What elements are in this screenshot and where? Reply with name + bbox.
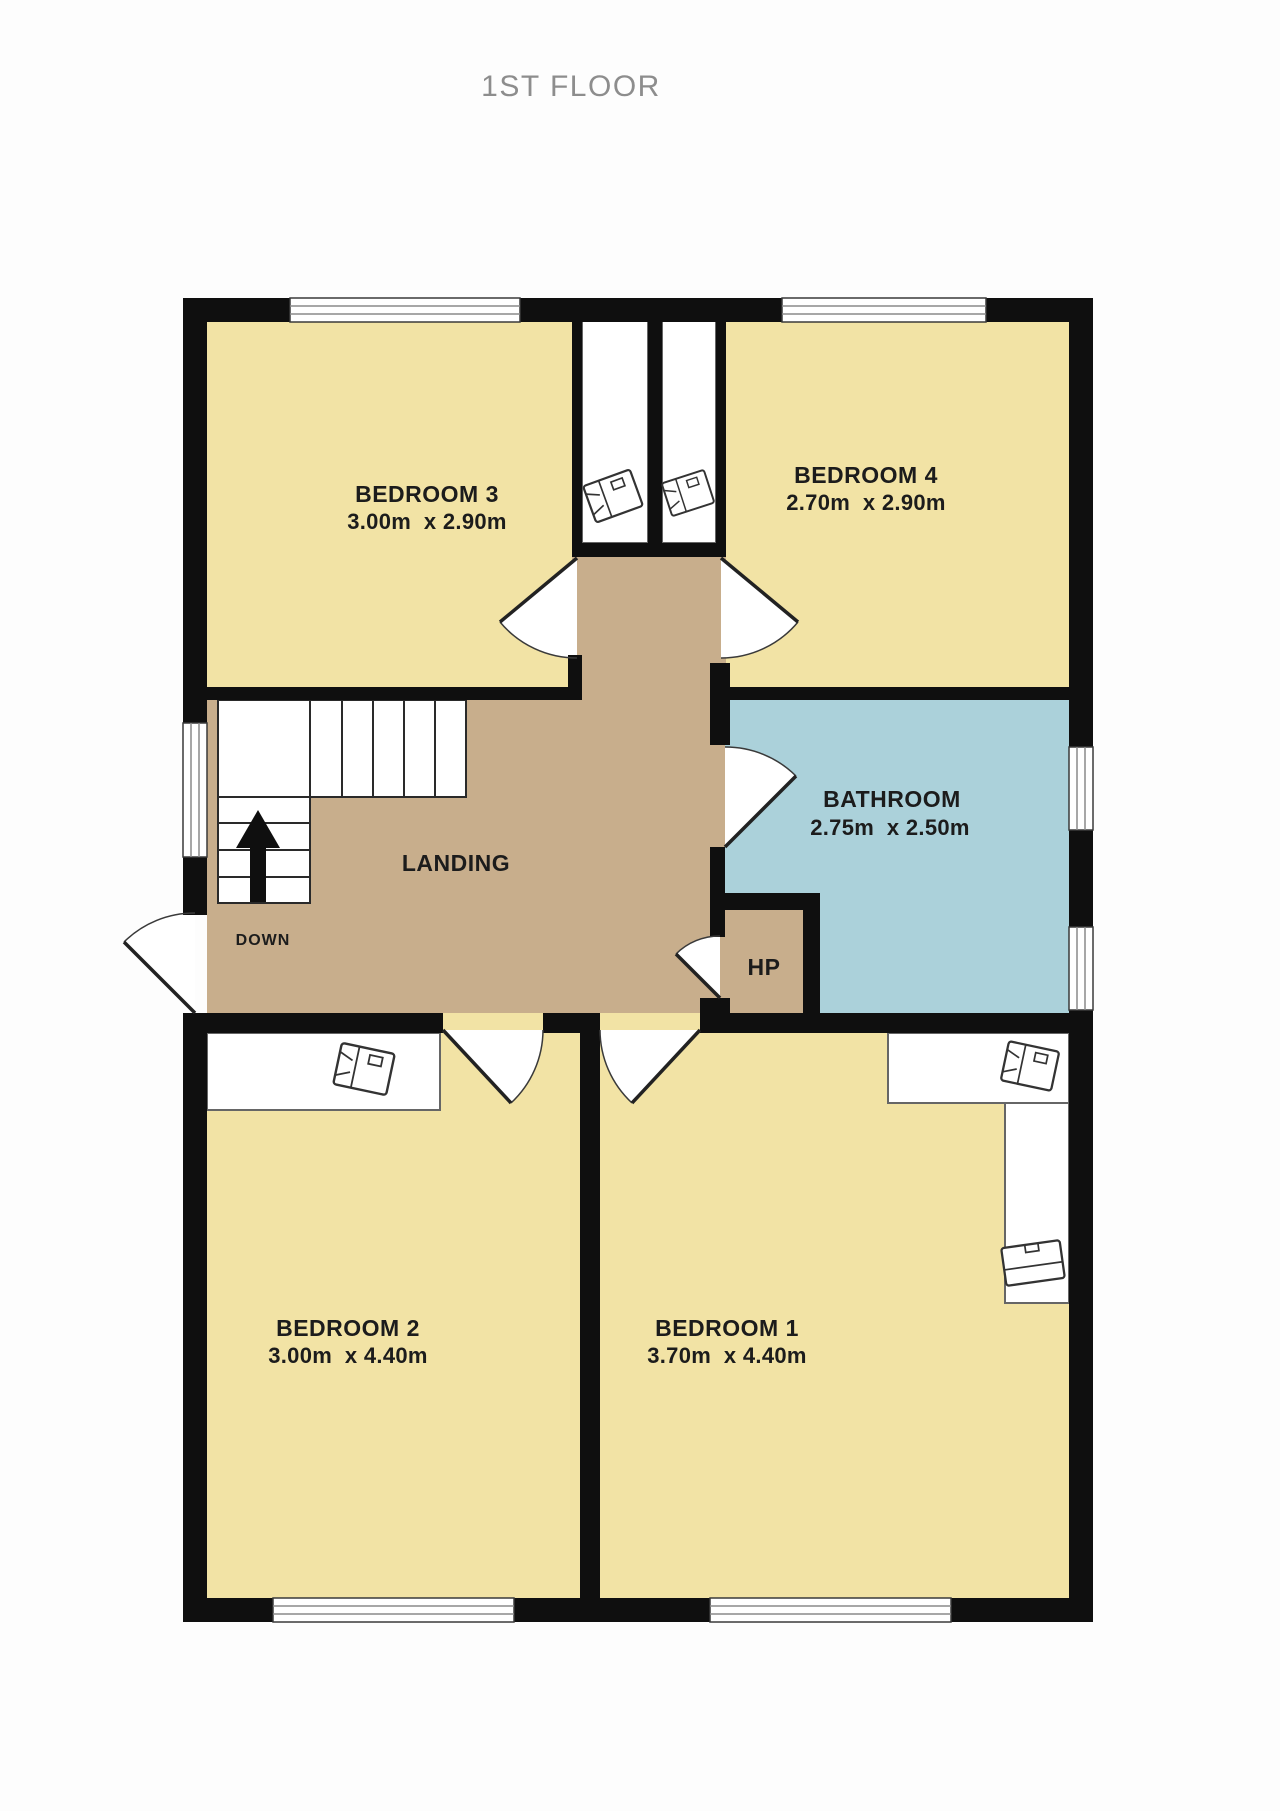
- room-dims: 3.00m x 4.40m: [268, 1343, 428, 1368]
- window-bathroom-lower: [1069, 927, 1093, 1010]
- wall-segment: [710, 663, 730, 745]
- room-name: LANDING: [402, 850, 510, 876]
- wall-segment: [716, 320, 726, 557]
- wall-segment: [183, 687, 582, 700]
- down-label: DOWN: [236, 932, 291, 949]
- wall-segment: [580, 1033, 600, 1598]
- wall-segment: [543, 1013, 600, 1033]
- room-name: BEDROOM 2: [276, 1315, 420, 1341]
- wall-segment: [648, 320, 662, 545]
- wall-segment: [700, 1013, 1069, 1033]
- window-bedroom3: [290, 298, 520, 322]
- window-bedroom1: [710, 1598, 951, 1622]
- room-dims: 3.70m x 4.40m: [647, 1343, 807, 1368]
- hp-label: HP: [748, 954, 781, 980]
- wall-segment: [1069, 1010, 1093, 1622]
- wall-segment: [183, 298, 207, 723]
- room-name: HP: [748, 954, 781, 980]
- room-name: BEDROOM 1: [655, 1315, 799, 1341]
- room-name: BATHROOM: [823, 786, 961, 812]
- room-name: BEDROOM 3: [355, 481, 499, 507]
- floor-plan-svg: 1ST FLOOR: [0, 0, 1280, 1811]
- room-dims: 2.70m x 2.90m: [786, 490, 946, 515]
- wall-segment: [568, 655, 582, 700]
- folded-clothes-icon: [1001, 1240, 1065, 1286]
- wall-segment: [183, 857, 207, 915]
- wall-segment: [710, 847, 725, 937]
- landing-corridor-floor: [572, 557, 726, 700]
- window-bathroom-upper: [1069, 747, 1093, 830]
- window-bedroom4: [782, 298, 986, 322]
- room-name: BEDROOM 4: [794, 462, 938, 488]
- stairs-direction: DOWN: [236, 932, 291, 949]
- wall-segment: [572, 543, 726, 557]
- room-dims: 2.75m x 2.50m: [810, 815, 970, 840]
- window-bedroom2: [273, 1598, 514, 1622]
- wall-segment: [520, 298, 782, 322]
- wall-segment: [183, 1013, 207, 1622]
- wall-segment: [1069, 830, 1093, 927]
- floor-plan-page: 1ST FLOOR: [0, 0, 1280, 1811]
- wall-segment: [572, 320, 582, 557]
- bedroom2-wardrobe: [207, 1033, 440, 1110]
- wall-segment: [183, 1013, 443, 1033]
- room-dims: 3.00m x 2.90m: [347, 509, 507, 534]
- wall-segment: [514, 1598, 710, 1622]
- window-landing: [183, 723, 207, 857]
- wall-segment: [716, 687, 1069, 700]
- landing-label: LANDING: [402, 850, 510, 876]
- plan-title: 1ST FLOOR: [481, 70, 661, 103]
- wall-segment: [1069, 298, 1093, 747]
- wall-segment: [803, 893, 820, 1033]
